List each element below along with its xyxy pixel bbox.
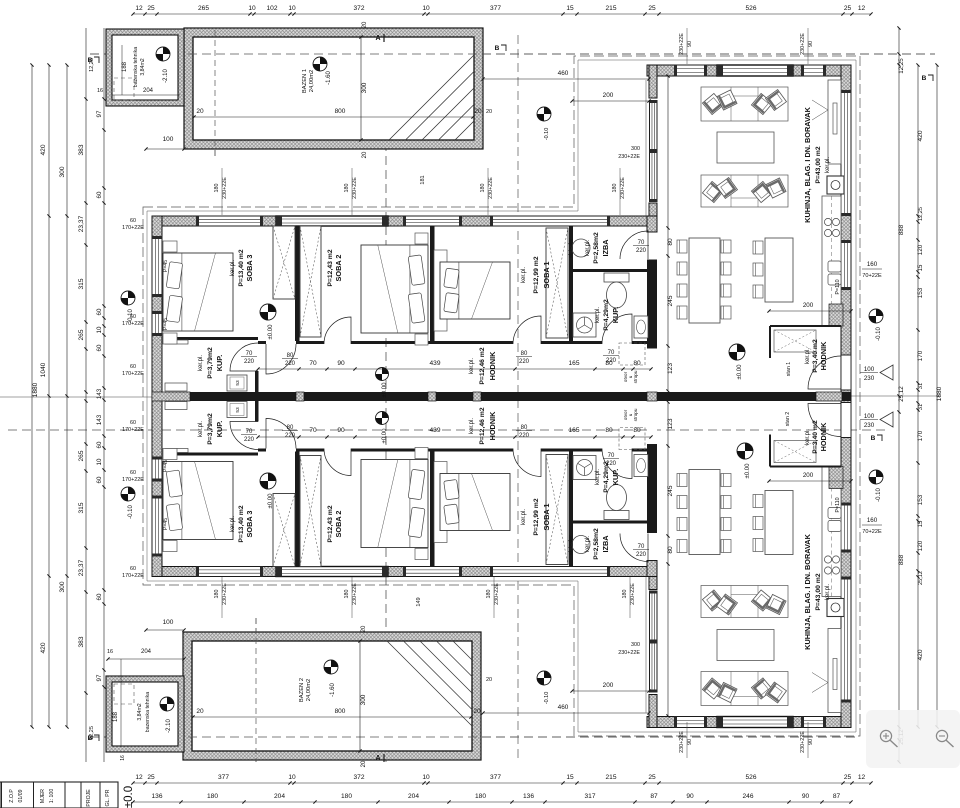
svg-text:230+22E: 230+22E [618,154,640,160]
svg-text:P=4,29m2: P=4,29m2 [603,299,610,331]
svg-text:165: 165 [568,360,579,367]
svg-text:180: 180 [612,184,618,193]
svg-text:23,37: 23,37 [78,559,85,576]
svg-text:31: 31 [918,383,924,389]
svg-text:180: 180 [207,793,218,800]
svg-text:SOBA 2: SOBA 2 [334,511,343,538]
svg-text:215: 215 [605,5,616,12]
svg-text:A: A [375,35,380,42]
svg-text:15: 15 [566,774,574,781]
svg-text:ker.pl.: ker.pl. [230,516,236,532]
svg-text:170+22E: 170+22E [122,427,144,433]
svg-text:90: 90 [686,793,694,800]
svg-text:GL. PR: GL. PR [105,789,111,806]
svg-text:el. bojler: el. bojler [568,535,574,555]
svg-text:20: 20 [362,151,368,158]
svg-text:102: 102 [266,5,277,12]
svg-text:136: 136 [523,793,534,800]
svg-text:80: 80 [605,427,613,434]
svg-text:ker.pl.: ker.pl. [230,260,236,276]
svg-text:204: 204 [274,793,285,800]
svg-text:70: 70 [246,351,253,357]
svg-text:60: 60 [96,441,103,448]
svg-text:12,25: 12,25 [918,207,924,221]
svg-text:230+22E: 230+22E [630,583,636,605]
svg-text:P=12,43 m2: P=12,43 m2 [327,505,334,542]
svg-text:BAZEN 2: BAZEN 2 [299,678,305,702]
svg-text:220: 220 [606,461,617,467]
svg-text:31: 31 [918,404,924,410]
svg-text:60: 60 [96,344,103,351]
svg-text:170+22E: 170+22E [122,477,144,483]
svg-text:97: 97 [96,674,103,681]
svg-text:70+22E: 70+22E [862,529,882,535]
svg-text:PROJE: PROJE [86,789,92,807]
svg-text:100: 100 [864,413,875,420]
svg-text:20: 20 [474,108,482,115]
svg-text:372: 372 [353,774,364,781]
svg-text:±0.00: ±0.00 [745,463,751,479]
svg-text:70: 70 [638,240,645,246]
svg-text:ker.pl.: ker.pl. [469,418,475,434]
svg-text:460: 460 [558,704,569,711]
svg-text:180: 180 [622,590,628,599]
svg-text:123: 123 [667,363,674,374]
svg-text:80: 80 [287,425,294,431]
svg-text:60: 60 [130,218,136,224]
svg-text:230+22E: 230+22E [679,731,685,753]
svg-text:ker.pl.: ker.pl. [521,267,527,283]
svg-text:±0.00: ±0.00 [268,324,274,340]
svg-text:stan 1: stan 1 [786,362,792,376]
svg-text:420: 420 [40,144,47,155]
svg-text:80: 80 [521,351,528,357]
svg-text:888: 888 [898,224,905,235]
svg-text:800: 800 [335,708,346,715]
svg-text:SOBA 1: SOBA 1 [542,504,551,531]
svg-text:70: 70 [638,544,645,550]
svg-text:170+22E: 170+22E [122,573,144,579]
svg-text:100: 100 [163,619,174,626]
svg-text:-0.10: -0.10 [544,692,550,705]
svg-text:377: 377 [490,774,501,781]
svg-text:±0.00: ±0.00 [737,364,743,380]
svg-text:180: 180 [214,590,220,599]
svg-text:P=3,79m2: P=3,79m2 [207,413,214,445]
svg-text:90: 90 [802,793,810,800]
svg-text:HODNIK: HODNIK [488,351,497,381]
svg-text:230: 230 [864,422,875,429]
svg-text:SOBA 3: SOBA 3 [245,255,254,282]
svg-text:100: 100 [864,366,875,373]
svg-text:KUHINJA, BLAG. I DN. BORAVAK: KUHINJA, BLAG. I DN. BORAVAK [803,533,812,649]
svg-text:20: 20 [361,760,367,767]
svg-text:230+22E: 230+22E [222,583,228,605]
svg-text:P=13,40 m2: P=13,40 m2 [238,249,245,286]
svg-text:±0.0: ±0.0 [123,786,135,808]
svg-text:IZBA: IZBA [601,535,610,553]
svg-text:204: 204 [141,649,152,655]
svg-text:12: 12 [135,5,143,12]
svg-text:KUP.: KUP. [611,307,620,324]
svg-text:P=3,40 m2: P=3,40 m2 [812,339,819,373]
svg-text:B: B [88,735,93,742]
svg-text:25,12: 25,12 [898,386,905,402]
svg-text:70: 70 [608,350,615,356]
svg-text:20: 20 [486,677,492,683]
svg-text:165: 165 [568,427,579,434]
svg-text:12,25: 12,25 [898,58,905,74]
svg-text:B: B [922,75,927,82]
svg-text:24,00m2: 24,00m2 [306,679,312,702]
svg-text:60: 60 [130,364,136,370]
svg-text:80: 80 [521,425,528,431]
svg-text:215: 215 [605,774,616,781]
svg-text:1040: 1040 [40,362,47,377]
svg-text:180: 180 [214,184,220,193]
svg-text:180: 180 [341,793,352,800]
svg-text:377: 377 [218,774,229,781]
svg-text:90: 90 [337,427,345,434]
svg-text:P=13,40 m2: P=13,40 m2 [238,505,245,542]
svg-text:16: 16 [107,649,113,655]
svg-text:220: 220 [244,359,255,365]
svg-text:230+22E: 230+22E [618,650,640,656]
svg-text:12: 12 [135,774,143,781]
svg-text:10: 10 [422,774,430,781]
svg-text:BAZEN 1: BAZEN 1 [302,69,308,93]
svg-text:ker.pl.: ker.pl. [805,348,811,364]
svg-text:90: 90 [808,739,814,745]
svg-text:170+22E: 170+22E [122,321,144,327]
svg-text:80: 80 [633,427,641,434]
svg-text:70: 70 [608,453,615,459]
svg-text:372: 372 [353,5,364,12]
svg-text:P=2,58m2: P=2,58m2 [593,232,600,264]
svg-text:230: 230 [864,375,875,382]
svg-text:143: 143 [96,388,103,399]
svg-text:90: 90 [808,41,814,47]
svg-text:526: 526 [745,774,756,781]
svg-text:-0.10: -0.10 [876,488,882,502]
svg-text:KUHINJA, BLAG. I DN. BORAVAK: KUHINJA, BLAG. I DN. BORAVAK [803,106,812,222]
svg-text:1880: 1880 [936,386,943,401]
svg-text:10: 10 [288,774,296,781]
svg-text:60: 60 [130,314,136,320]
svg-text:10: 10 [96,458,103,465]
svg-text:±0.00: ±0.00 [268,493,274,509]
svg-text:ker.pl.: ker.pl. [825,157,831,173]
svg-text:P=45: P=45 [163,460,169,472]
svg-text:P=43,00 m2: P=43,00 m2 [815,146,822,183]
svg-text:P=12,46 m2: P=12,46 m2 [479,407,486,444]
svg-text:170+22E: 170+22E [122,225,144,231]
svg-text:300: 300 [59,166,66,177]
svg-text:ker.pl.: ker.pl. [198,421,204,437]
svg-text:1: 100: 1: 100 [49,789,55,804]
svg-text:315: 315 [78,502,85,513]
svg-text:25: 25 [844,5,852,12]
svg-text:170: 170 [917,430,924,441]
svg-text:143: 143 [96,414,103,425]
svg-text:200: 200 [603,682,614,689]
svg-text:SOBA 2: SOBA 2 [334,255,343,282]
svg-text:300: 300 [59,581,66,592]
svg-text:23,37: 23,37 [78,215,85,232]
svg-text:12: 12 [858,5,866,12]
svg-text:16: 16 [120,755,126,761]
svg-text:420: 420 [917,130,924,141]
svg-text:25: 25 [147,774,155,781]
svg-text:220: 220 [244,437,255,443]
svg-text:90: 90 [687,739,693,745]
svg-text:200: 200 [803,472,814,479]
svg-text:181: 181 [420,175,426,184]
svg-text:300: 300 [631,642,640,648]
svg-text:246: 246 [742,793,753,800]
svg-text:460: 460 [558,70,569,77]
svg-text:300: 300 [631,146,640,152]
svg-text:265: 265 [198,5,209,12]
svg-text:80: 80 [667,546,674,554]
svg-text:220: 220 [636,248,647,254]
svg-text:377: 377 [490,5,501,12]
svg-text:180: 180 [480,184,486,193]
svg-text:70+22E: 70+22E [862,273,882,279]
svg-text:220: 220 [285,433,296,439]
svg-text:20: 20 [362,21,368,28]
svg-text:15: 15 [566,5,574,12]
svg-text:315: 315 [78,278,85,289]
svg-text:123: 123 [667,418,674,429]
svg-text:KUP.: KUP. [215,421,224,438]
svg-text:20: 20 [196,108,204,115]
svg-text:53: 53 [235,380,241,386]
svg-text:B: B [88,57,93,64]
svg-text:136: 136 [151,793,162,800]
svg-text:317: 317 [584,793,595,800]
svg-text:80: 80 [633,360,641,367]
svg-text:-0.10: -0.10 [544,128,550,141]
svg-text:180: 180 [344,184,350,193]
svg-text:300: 300 [360,694,367,705]
svg-text:SOBA 3: SOBA 3 [245,511,254,538]
svg-text:P=12,99 m2: P=12,99 m2 [533,498,540,535]
svg-text:stan 2: stan 2 [785,412,791,426]
svg-text:80: 80 [667,238,674,246]
svg-text:IZBA: IZBA [601,239,610,257]
svg-text:170: 170 [917,350,924,361]
svg-text:420: 420 [917,649,924,660]
svg-text:-2.10: -2.10 [163,69,169,83]
svg-text:160: 160 [867,261,878,268]
svg-text:25: 25 [648,5,656,12]
svg-text:60: 60 [96,593,103,600]
svg-text:P=110: P=110 [835,497,841,512]
svg-text:87: 87 [833,793,841,800]
svg-text:120: 120 [917,244,924,255]
svg-text:P=45: P=45 [163,518,169,530]
svg-text:60: 60 [96,476,103,483]
svg-text:230+22E: 230+22E [352,583,358,605]
svg-text:25,12: 25,12 [918,571,924,585]
svg-text:±0.00: ±0.00 [382,382,388,398]
svg-text:ker.pl.: ker.pl. [595,469,601,485]
svg-text:230+22E: 230+22E [222,177,228,199]
svg-text:53: 53 [235,407,241,413]
svg-text:10: 10 [96,326,103,333]
svg-text:15: 15 [918,520,924,527]
svg-text:25: 25 [844,774,852,781]
svg-text:24,00m2: 24,00m2 [309,70,315,93]
svg-text:HODNIK: HODNIK [819,422,828,452]
svg-text:100: 100 [163,136,174,143]
svg-text:439: 439 [429,360,440,367]
svg-text:300: 300 [361,82,368,93]
svg-text:220: 220 [519,433,530,439]
svg-text:220: 220 [519,359,530,365]
svg-text:SOBA 1: SOBA 1 [542,262,551,289]
svg-text:±0.00: ±0.00 [382,428,388,444]
svg-text:10: 10 [248,5,256,12]
svg-text:B: B [871,435,876,442]
svg-text:245: 245 [667,295,674,306]
svg-text:220: 220 [606,358,617,364]
svg-text:383: 383 [78,636,85,647]
svg-text:25: 25 [648,774,656,781]
svg-text:204: 204 [408,793,419,800]
svg-text:70: 70 [309,427,317,434]
svg-text:ker.pl.: ker.pl. [595,307,601,323]
svg-text:HODNIK: HODNIK [819,341,828,371]
svg-text:60: 60 [96,308,103,315]
svg-text:245: 245 [667,485,674,496]
svg-text:80: 80 [287,353,294,359]
svg-text:97: 97 [96,110,103,117]
svg-text:20: 20 [196,708,204,715]
svg-text:A: A [375,755,380,762]
svg-text:B: B [495,45,500,52]
svg-text:KUP.: KUP. [611,469,620,486]
svg-text:90: 90 [687,41,693,47]
svg-text:P=12,99 m2: P=12,99 m2 [533,256,540,293]
svg-text:70: 70 [246,429,253,435]
svg-text:439: 439 [429,427,440,434]
svg-text:800: 800 [335,108,346,115]
svg-text:stropu: stropu [633,408,638,421]
svg-text:ker.pl.: ker.pl. [521,509,527,525]
svg-text:P=2,58m2: P=2,58m2 [593,528,600,560]
svg-text:ker.pl.: ker.pl. [585,240,591,256]
svg-text:P=43,00 m2: P=43,00 m2 [815,573,822,610]
svg-text:bazenska tehnika: bazenska tehnika [145,692,151,732]
svg-text:15: 15 [918,264,924,271]
svg-text:20: 20 [486,109,492,115]
svg-text:153: 153 [917,494,924,505]
svg-text:01/09: 01/09 [18,789,24,802]
svg-text:KUP.: KUP. [215,355,224,372]
svg-text:60: 60 [130,420,136,426]
svg-text:P=45: P=45 [163,260,169,272]
svg-text:230+22E: 230+22E [620,177,626,199]
svg-text:bazenska tehnika: bazenska tehnika [133,47,139,87]
svg-text:230+22E: 230+22E [800,33,806,55]
svg-text:204: 204 [143,88,154,94]
svg-text:87: 87 [650,793,658,800]
svg-text:230+22E: 230+22E [488,177,494,199]
svg-text:220: 220 [636,552,647,558]
svg-text:3,84m2: 3,84m2 [137,703,143,720]
svg-text:200: 200 [603,92,614,99]
svg-text:MJER: MJER [40,789,46,803]
svg-text:220: 220 [285,361,296,367]
svg-text:-0.10: -0.10 [128,505,134,519]
svg-text:10: 10 [422,5,430,12]
svg-text:ker.pl.: ker.pl. [585,536,591,552]
svg-text:HODNIK: HODNIK [488,411,497,441]
svg-text:P=3,40 m2: P=3,40 m2 [812,420,819,454]
svg-text:230+22E: 230+22E [352,177,358,199]
svg-text:170+22E: 170+22E [122,371,144,377]
svg-text:25: 25 [147,5,155,12]
svg-text:120: 120 [917,540,924,551]
svg-text:265: 265 [78,329,85,340]
svg-text:188: 188 [122,61,128,72]
svg-text:526: 526 [745,5,756,12]
svg-text:180: 180 [475,793,486,800]
svg-text:P=3,79m2: P=3,79m2 [207,347,214,379]
svg-text:60: 60 [130,566,136,572]
svg-text:20: 20 [473,708,481,715]
svg-text:70: 70 [309,360,317,367]
svg-text:3,84m2: 3,84m2 [140,58,146,75]
svg-text:ker.pl.: ker.pl. [198,355,204,371]
svg-text:1880: 1880 [32,382,39,397]
svg-text:el. bojler: el. bojler [568,238,574,258]
svg-text:90: 90 [337,360,345,367]
svg-text:200: 200 [803,302,814,309]
svg-text:-0.10: -0.10 [876,327,882,341]
svg-text:P=110: P=110 [835,279,841,294]
svg-text:60: 60 [96,191,103,198]
svg-text:12: 12 [858,774,866,781]
svg-text:230+22E: 230+22E [494,583,500,605]
svg-text:160: 160 [867,517,878,524]
svg-text:P=12,43 m2: P=12,43 m2 [327,249,334,286]
svg-text:P=12,46 m2: P=12,46 m2 [479,347,486,384]
svg-text:180: 180 [344,590,350,599]
svg-text:265: 265 [78,450,85,461]
svg-text:ker.pl.: ker.pl. [825,584,831,600]
svg-text:ker.pl.: ker.pl. [469,358,475,374]
svg-text:P=45: P=45 [163,318,169,330]
svg-text:ker.pl.: ker.pl. [805,429,811,445]
svg-text:stropu: stropu [633,370,638,383]
svg-text:16: 16 [97,88,103,94]
svg-text:Z.O.P: Z.O.P [9,789,15,803]
svg-text:230+22E: 230+22E [679,33,685,55]
svg-text:420: 420 [40,642,47,653]
svg-text:230+22E: 230+22E [800,731,806,753]
svg-text:10: 10 [288,5,296,12]
svg-text:180: 180 [486,590,492,599]
svg-text:149: 149 [416,597,422,606]
svg-text:188: 188 [113,711,119,722]
svg-text:-2.10: -2.10 [166,719,172,733]
svg-text:383: 383 [78,144,85,155]
svg-text:-1.60: -1.60 [326,71,332,85]
svg-text:-1.60: -1.60 [330,683,336,697]
